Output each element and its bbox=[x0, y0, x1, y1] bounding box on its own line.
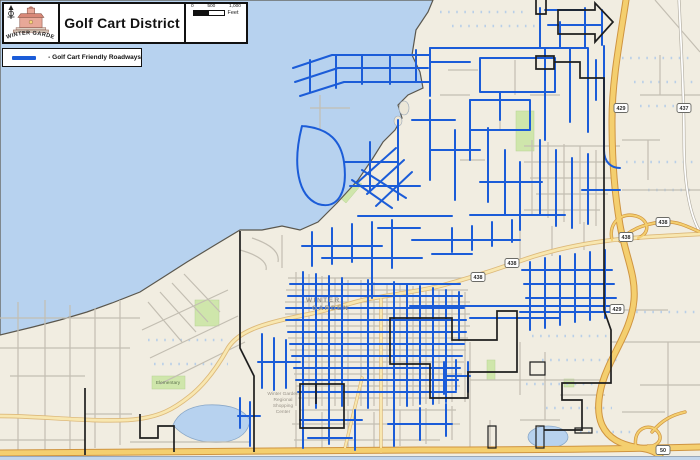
route-shield-50: 50 bbox=[656, 446, 670, 455]
legend-label: - Golf Cart Friendly Roadways bbox=[48, 54, 141, 61]
map-title: Golf Cart District bbox=[60, 4, 186, 42]
svg-text:429: 429 bbox=[617, 106, 626, 112]
scale-unit: Feet bbox=[227, 10, 238, 16]
map-frame-edge bbox=[0, 456, 700, 460]
svg-text:438: 438 bbox=[508, 261, 517, 267]
route-shield-438: 438 bbox=[505, 259, 519, 268]
map-header: WINTER GARDEN Golf Cart District 0 500 1… bbox=[2, 2, 248, 44]
elementary-label: Elementary bbox=[156, 380, 181, 386]
svg-text:50: 50 bbox=[660, 448, 666, 454]
route-shield-438: 438 bbox=[619, 233, 633, 242]
svg-text:438: 438 bbox=[622, 235, 631, 241]
shopping-center-label: Regional bbox=[274, 397, 293, 403]
north-arrow-icon bbox=[4, 4, 18, 20]
scale-tick-0: 0 bbox=[191, 4, 194, 9]
city-label: WINTER bbox=[306, 297, 341, 304]
legend: - Golf Cart Friendly Roadways bbox=[2, 48, 142, 67]
svg-text:438: 438 bbox=[474, 275, 483, 281]
svg-text:437: 437 bbox=[680, 106, 689, 112]
city-label: GARDEN bbox=[312, 305, 349, 312]
shopping-center-label: Winter Garden bbox=[267, 391, 299, 397]
map-canvas: 438 438 438 438 429 429 437 50 WINTER GA… bbox=[0, 0, 700, 460]
island bbox=[399, 101, 409, 115]
shopping-center-label: Shopping bbox=[273, 403, 294, 409]
scale-box: 0 500 1,000 Feet bbox=[186, 4, 246, 42]
svg-text:438: 438 bbox=[659, 220, 668, 226]
city-hall-icon bbox=[13, 6, 48, 32]
route-shield-438: 438 bbox=[471, 273, 485, 282]
scale-ticks: 0 500 1,000 bbox=[191, 4, 241, 9]
route-shield-437: 437 bbox=[677, 104, 691, 113]
scale-tick-1000: 1,000 bbox=[229, 4, 241, 9]
scale-bar bbox=[193, 10, 225, 16]
scale-tick-500: 500 bbox=[207, 4, 215, 9]
shopping-center-label: Center bbox=[276, 409, 291, 415]
svg-text:429: 429 bbox=[613, 307, 622, 313]
map-page: 438 438 438 438 429 429 437 50 WINTER GA… bbox=[0, 0, 700, 460]
legend-line-sample bbox=[12, 56, 36, 60]
route-shield-438: 438 bbox=[656, 218, 670, 227]
route-shield-429: 429 bbox=[610, 305, 624, 314]
route-shield-429: 429 bbox=[614, 104, 628, 113]
